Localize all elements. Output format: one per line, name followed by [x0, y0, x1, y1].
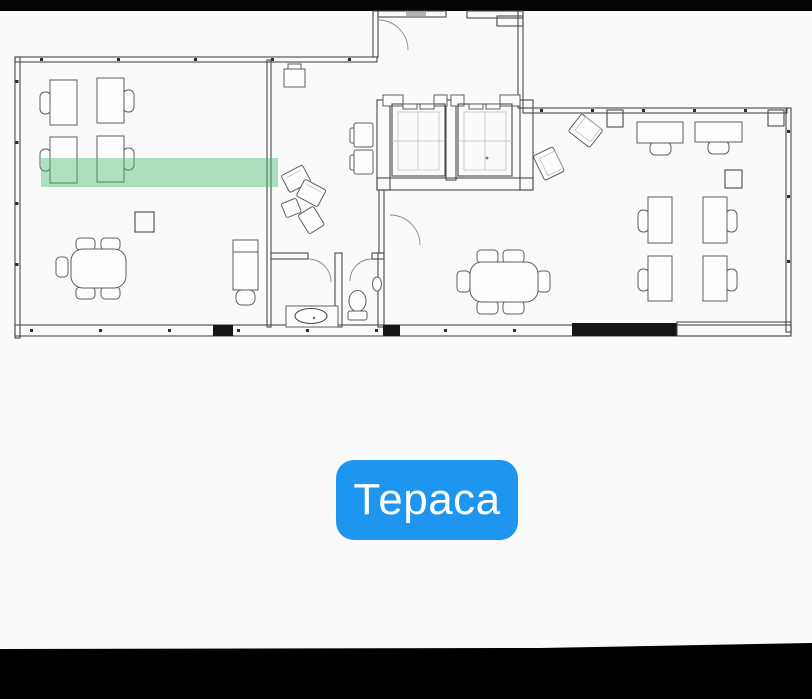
floor-plan-image: [0, 0, 812, 362]
wall-above-right-piece: [467, 11, 523, 18]
elevator-car: [392, 104, 445, 176]
terrace-label-text: Тераса: [353, 478, 500, 522]
right-room-top-wall: [523, 108, 787, 113]
waiting-chair: [350, 150, 373, 174]
wc: [271, 215, 420, 327]
lobby-wall: [379, 190, 384, 253]
chair-icon: [284, 64, 305, 87]
corridor-left-wall: [267, 60, 271, 327]
terrace-label-button[interactable]: Тераса: [336, 460, 518, 540]
right-room-right-wall: [786, 108, 791, 332]
elevator-car: [458, 104, 512, 176]
meeting-table: [56, 238, 126, 299]
desk-with-chair: [40, 80, 77, 125]
plant-icon: [725, 170, 742, 188]
desk-with-chair: [638, 256, 672, 301]
armchair-icon: [533, 147, 565, 181]
desk-with-chair: [695, 122, 742, 154]
screenshot-root: Тераса: [0, 0, 812, 699]
door-threshold: [213, 325, 233, 336]
elevator-bank: [377, 95, 533, 190]
desk-with-chair: [703, 256, 737, 301]
toilet-icon: [349, 291, 366, 312]
highlight-zone: [41, 158, 278, 187]
terrace-door-panel: [572, 323, 677, 336]
wc-wall: [271, 253, 308, 259]
toilet-base: [348, 311, 367, 320]
wall-above-left: [373, 11, 378, 57]
desk-with-chair: [638, 197, 672, 243]
door-arc-wc-right: [350, 259, 372, 281]
door-arc-lobby: [390, 215, 420, 245]
armchair-icon: [568, 114, 603, 148]
terrace-sill: [677, 322, 791, 336]
corridor-seating: [281, 64, 373, 234]
sink-drain: [313, 317, 315, 319]
desk-with-chair: [703, 197, 737, 243]
shaft-wall-left: [377, 100, 390, 190]
door-arc-upper: [378, 20, 408, 50]
fan-seating-group: [281, 165, 326, 234]
plant-icon: [135, 212, 154, 232]
window-sill: [406, 12, 426, 16]
shaft-divider: [446, 100, 456, 180]
lounge-chair: [233, 240, 258, 305]
right-office-furniture: [457, 114, 742, 314]
desk-with-chair: [97, 78, 134, 123]
waiting-chair: [350, 123, 373, 147]
door-arc-wc-left: [308, 259, 331, 282]
door-threshold: [383, 325, 400, 336]
left-office-furniture: [40, 78, 258, 305]
meeting-table: [457, 250, 550, 314]
desk-with-chair: [637, 122, 683, 155]
column: [768, 110, 784, 126]
left-wall: [15, 57, 20, 338]
wall-basin-icon: [373, 277, 382, 291]
